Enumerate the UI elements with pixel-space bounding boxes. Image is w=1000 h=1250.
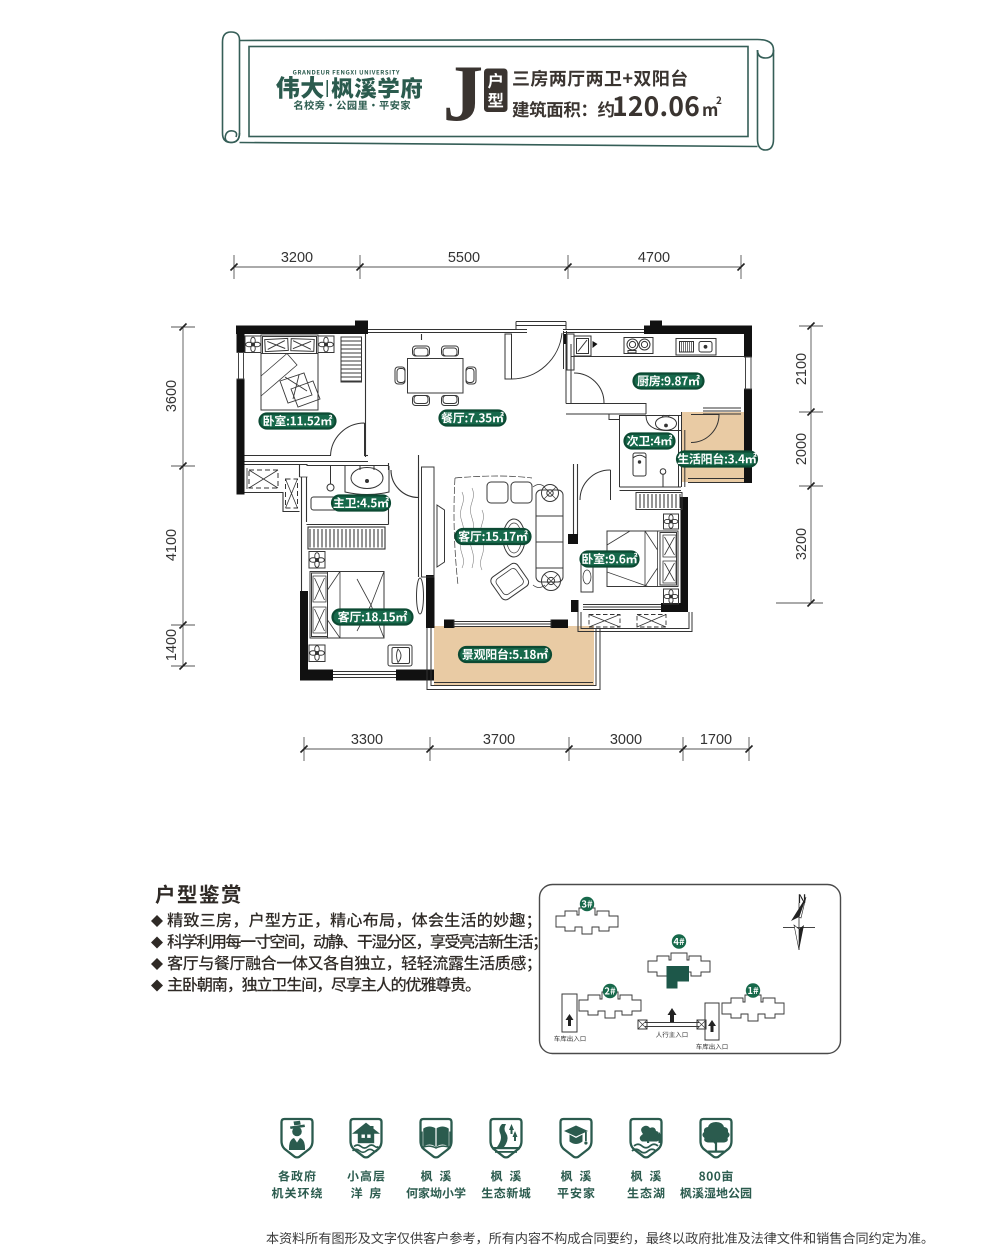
svg-text:1400: 1400: [164, 629, 180, 661]
svg-text:J: J: [443, 48, 484, 138]
svg-text:2000: 2000: [794, 433, 810, 465]
svg-text:1700: 1700: [700, 732, 732, 748]
svg-text:3200: 3200: [794, 528, 810, 560]
svg-text:3200: 3200: [281, 250, 313, 266]
svg-text:5500: 5500: [448, 250, 480, 266]
svg-text:3600: 3600: [164, 380, 180, 412]
svg-text:4700: 4700: [638, 250, 670, 266]
svg-text:3300: 3300: [351, 732, 383, 748]
svg-text:3000: 3000: [610, 732, 642, 748]
svg-text:4100: 4100: [164, 529, 180, 561]
svg-text:2100: 2100: [794, 353, 810, 385]
svg-text:3700: 3700: [483, 732, 515, 748]
